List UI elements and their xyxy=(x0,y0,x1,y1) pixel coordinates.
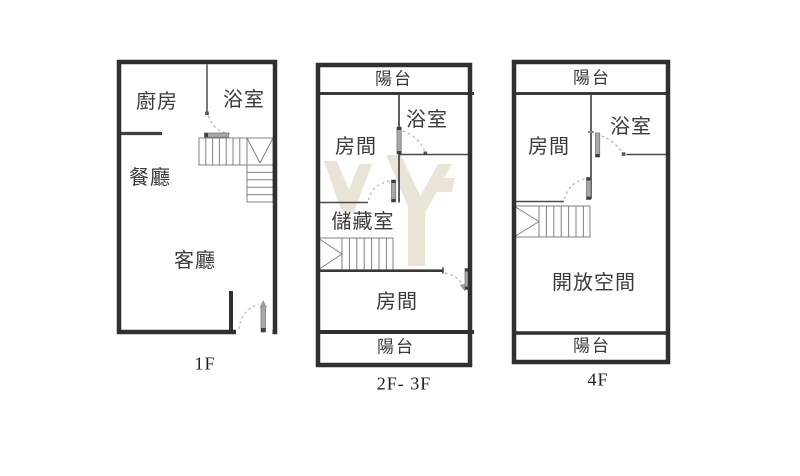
room-label-balcony-top-4f: 陽台 xyxy=(573,70,611,87)
door-swing-arc xyxy=(209,116,232,134)
staircase-2f xyxy=(318,238,393,270)
room-label-bedroom-upper-2f: 房間 xyxy=(335,137,377,157)
staircase-1f xyxy=(199,138,273,202)
room-label-storage: 儲藏室 xyxy=(332,212,395,232)
room-label-balcony-top-2f: 陽台 xyxy=(375,71,413,88)
entry-door-leaf xyxy=(260,300,268,332)
room-label-balcony-bottom-4f: 陽台 xyxy=(573,338,611,355)
room-label-bedroom-lower-2f: 房間 xyxy=(376,292,418,312)
lower-bedroom-door xyxy=(445,269,469,292)
door-hinge-dot xyxy=(205,112,209,116)
floor-4f-plan xyxy=(512,62,670,362)
room-label-dining: 餐廳 xyxy=(129,168,171,188)
floor-title-4f: 4F xyxy=(587,370,608,391)
room-label-kitchen: 廚房 xyxy=(136,92,178,112)
floor-title-2f3f: 2F- 3F xyxy=(377,374,432,395)
staircase-4f xyxy=(514,206,590,237)
floorplan-canvas: 廚房 浴室 餐廳 客廳 1F 陽台 房間 浴室 儲藏室 房間 陽台 2F- 3F… xyxy=(0,0,800,476)
floor-title-1f: 1F xyxy=(194,354,215,375)
room-label-bedroom-4f: 房間 xyxy=(528,137,570,157)
room-label-balcony-bottom-2f: 陽台 xyxy=(377,339,415,356)
door-leaf xyxy=(205,133,229,137)
room-label-bathroom-2f: 浴室 xyxy=(406,110,448,130)
bathroom-door xyxy=(397,127,427,155)
door-swing-arc xyxy=(239,305,259,330)
bedroom-door xyxy=(565,178,591,200)
bedroom-door xyxy=(369,180,396,202)
room-label-bathroom-1f: 浴室 xyxy=(223,90,265,110)
room-label-open-space: 開放空間 xyxy=(552,273,636,293)
room-label-bathroom-4f: 浴室 xyxy=(610,117,652,137)
room-label-living: 客廳 xyxy=(174,251,216,271)
